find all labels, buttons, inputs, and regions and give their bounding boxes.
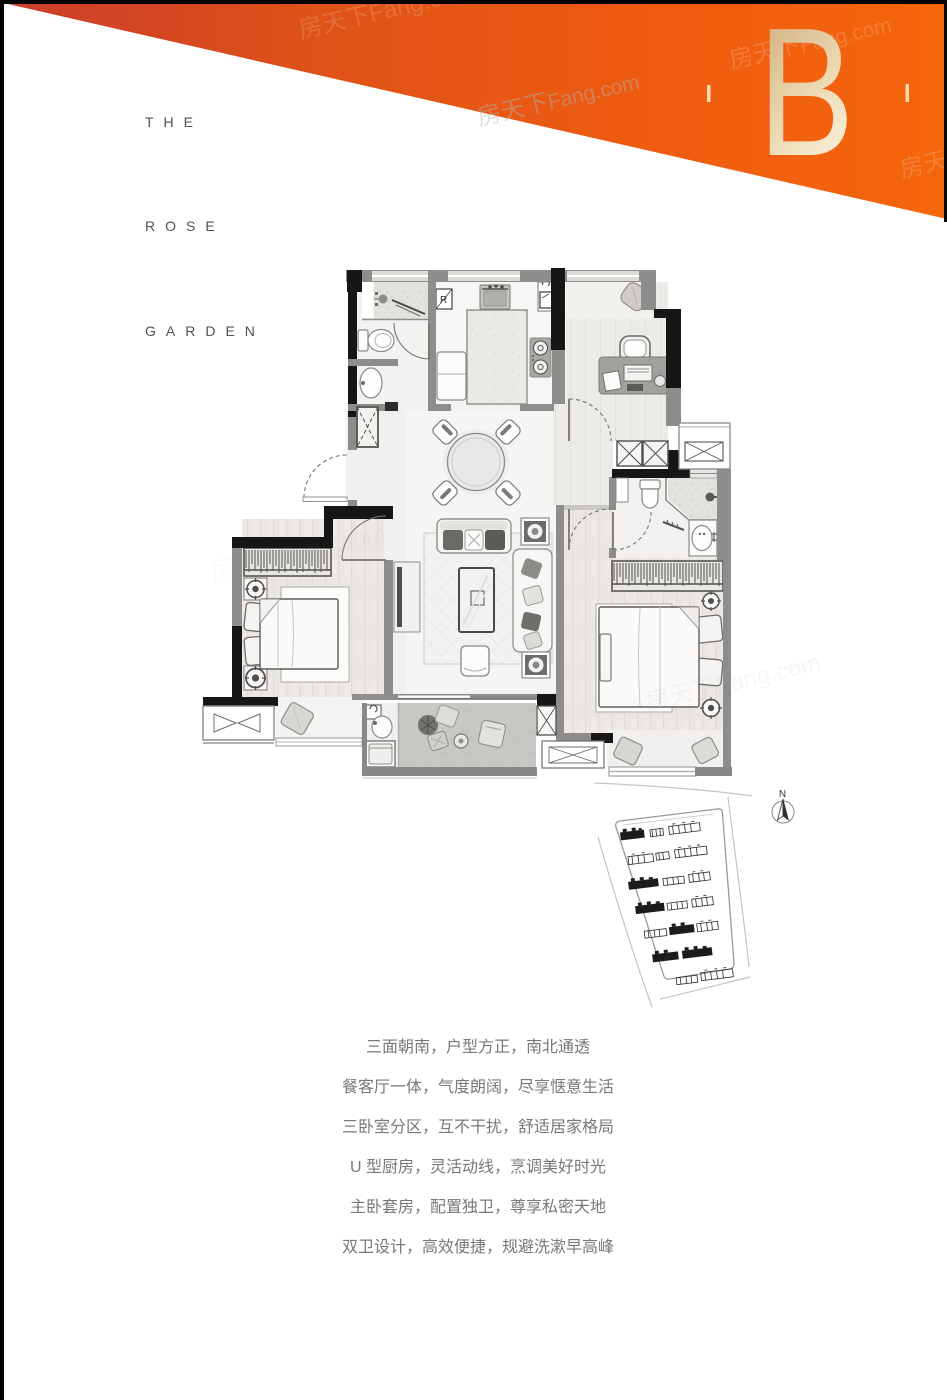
- svg-text:GARDEN: GARDEN: [145, 323, 265, 339]
- svg-text:U 型厨房，灵活动线，烹调美好时光: U 型厨房，灵活动线，烹调美好时光: [350, 1157, 606, 1176]
- svg-text:主卧套房，配置独卫，尊享私密天地: 主卧套房，配置独卫，尊享私密天地: [350, 1198, 606, 1216]
- svg-text:ROSE: ROSE: [145, 218, 225, 234]
- svg-text:R: R: [440, 295, 447, 306]
- svg-text:餐客厅一体，气度朗阔，尽享惬意生活: 餐客厅一体，气度朗阔，尽享惬意生活: [342, 1077, 614, 1096]
- svg-text:双卫设计，高效便捷，规避洗漱早高峰: 双卫设计，高效便捷，规避洗漱早高峰: [342, 1238, 614, 1256]
- svg-text:三面朝南，户型方正，南北通透: 三面朝南，户型方正，南北通透: [366, 1038, 590, 1056]
- svg-text:THE: THE: [145, 114, 203, 130]
- svg-text:三卧室分区，互不干扰，舒适居家格局: 三卧室分区，互不干扰，舒适居家格局: [342, 1118, 614, 1136]
- svg-text:B: B: [758, 0, 854, 194]
- svg-text:N: N: [779, 789, 787, 800]
